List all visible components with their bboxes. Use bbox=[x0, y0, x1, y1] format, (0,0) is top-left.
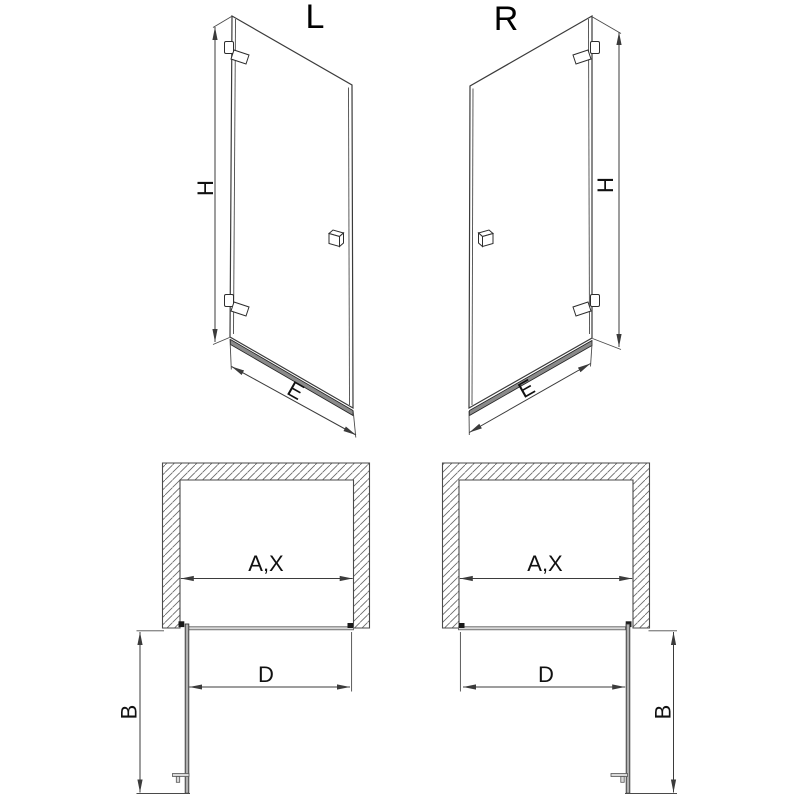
door-left-top-hinge-back bbox=[225, 42, 234, 54]
plan-left-hinge-block bbox=[179, 621, 185, 627]
dim-label-d-right: D bbox=[538, 662, 554, 687]
door-right-glass-panel bbox=[469, 16, 592, 408]
plan-right-strike-block bbox=[459, 623, 465, 628]
variant-label-right: R bbox=[494, 0, 519, 38]
dim-label-e-left: E bbox=[283, 376, 308, 405]
door-right-handle bbox=[479, 230, 494, 247]
plan-left-door-open-leaf bbox=[185, 624, 189, 793]
plan-right-door-closed-line bbox=[459, 627, 626, 630]
door-left-handle bbox=[329, 230, 344, 247]
door-right-e-extension-right bbox=[591, 344, 593, 367]
dim-label-ax-right: A,X bbox=[527, 551, 563, 576]
plan-right-door-open-leaf bbox=[626, 624, 630, 793]
plan-left-door-closed-line bbox=[187, 627, 354, 630]
door-right-bottom-hinge-back bbox=[591, 295, 600, 307]
plan-right-door-handle-stub bbox=[621, 777, 624, 783]
door-left-view: L H E bbox=[193, 0, 356, 438]
door-right-view: R H E bbox=[469, 0, 621, 435]
dim-label-b-right: B bbox=[651, 705, 676, 720]
dim-label-h-right: H bbox=[593, 177, 618, 193]
plan-left-strike-block bbox=[348, 623, 354, 628]
shower-door-technical-diagram: L H E R bbox=[0, 0, 800, 800]
diagram-page: L H E R bbox=[0, 0, 800, 800]
dim-label-ax-left: A,X bbox=[248, 551, 284, 576]
door-right-h-extension-bottom bbox=[593, 339, 622, 350]
variant-label-left: L bbox=[306, 0, 325, 36]
plan-right-walls bbox=[443, 463, 650, 628]
door-left-glass-panel bbox=[230, 16, 353, 408]
plan-right-view: A,X D B bbox=[443, 463, 678, 794]
plan-left-walls bbox=[163, 463, 370, 628]
plan-left-view: A,X D B bbox=[117, 463, 370, 794]
dim-label-h-left: H bbox=[193, 180, 218, 196]
door-left-bottom-hinge-back bbox=[225, 295, 234, 307]
door-right-top-hinge-back bbox=[591, 42, 600, 54]
plan-left-door-handle-stub bbox=[176, 777, 179, 783]
plan-left-door-handle-bar bbox=[173, 774, 190, 777]
door-right-h-extension-top bbox=[593, 17, 622, 34]
dim-label-b-left: B bbox=[117, 705, 142, 720]
door-left-h-extension-top bbox=[213, 17, 232, 28]
dim-label-d-left: D bbox=[258, 662, 274, 687]
plan-right-door-handle-bar bbox=[611, 774, 628, 777]
